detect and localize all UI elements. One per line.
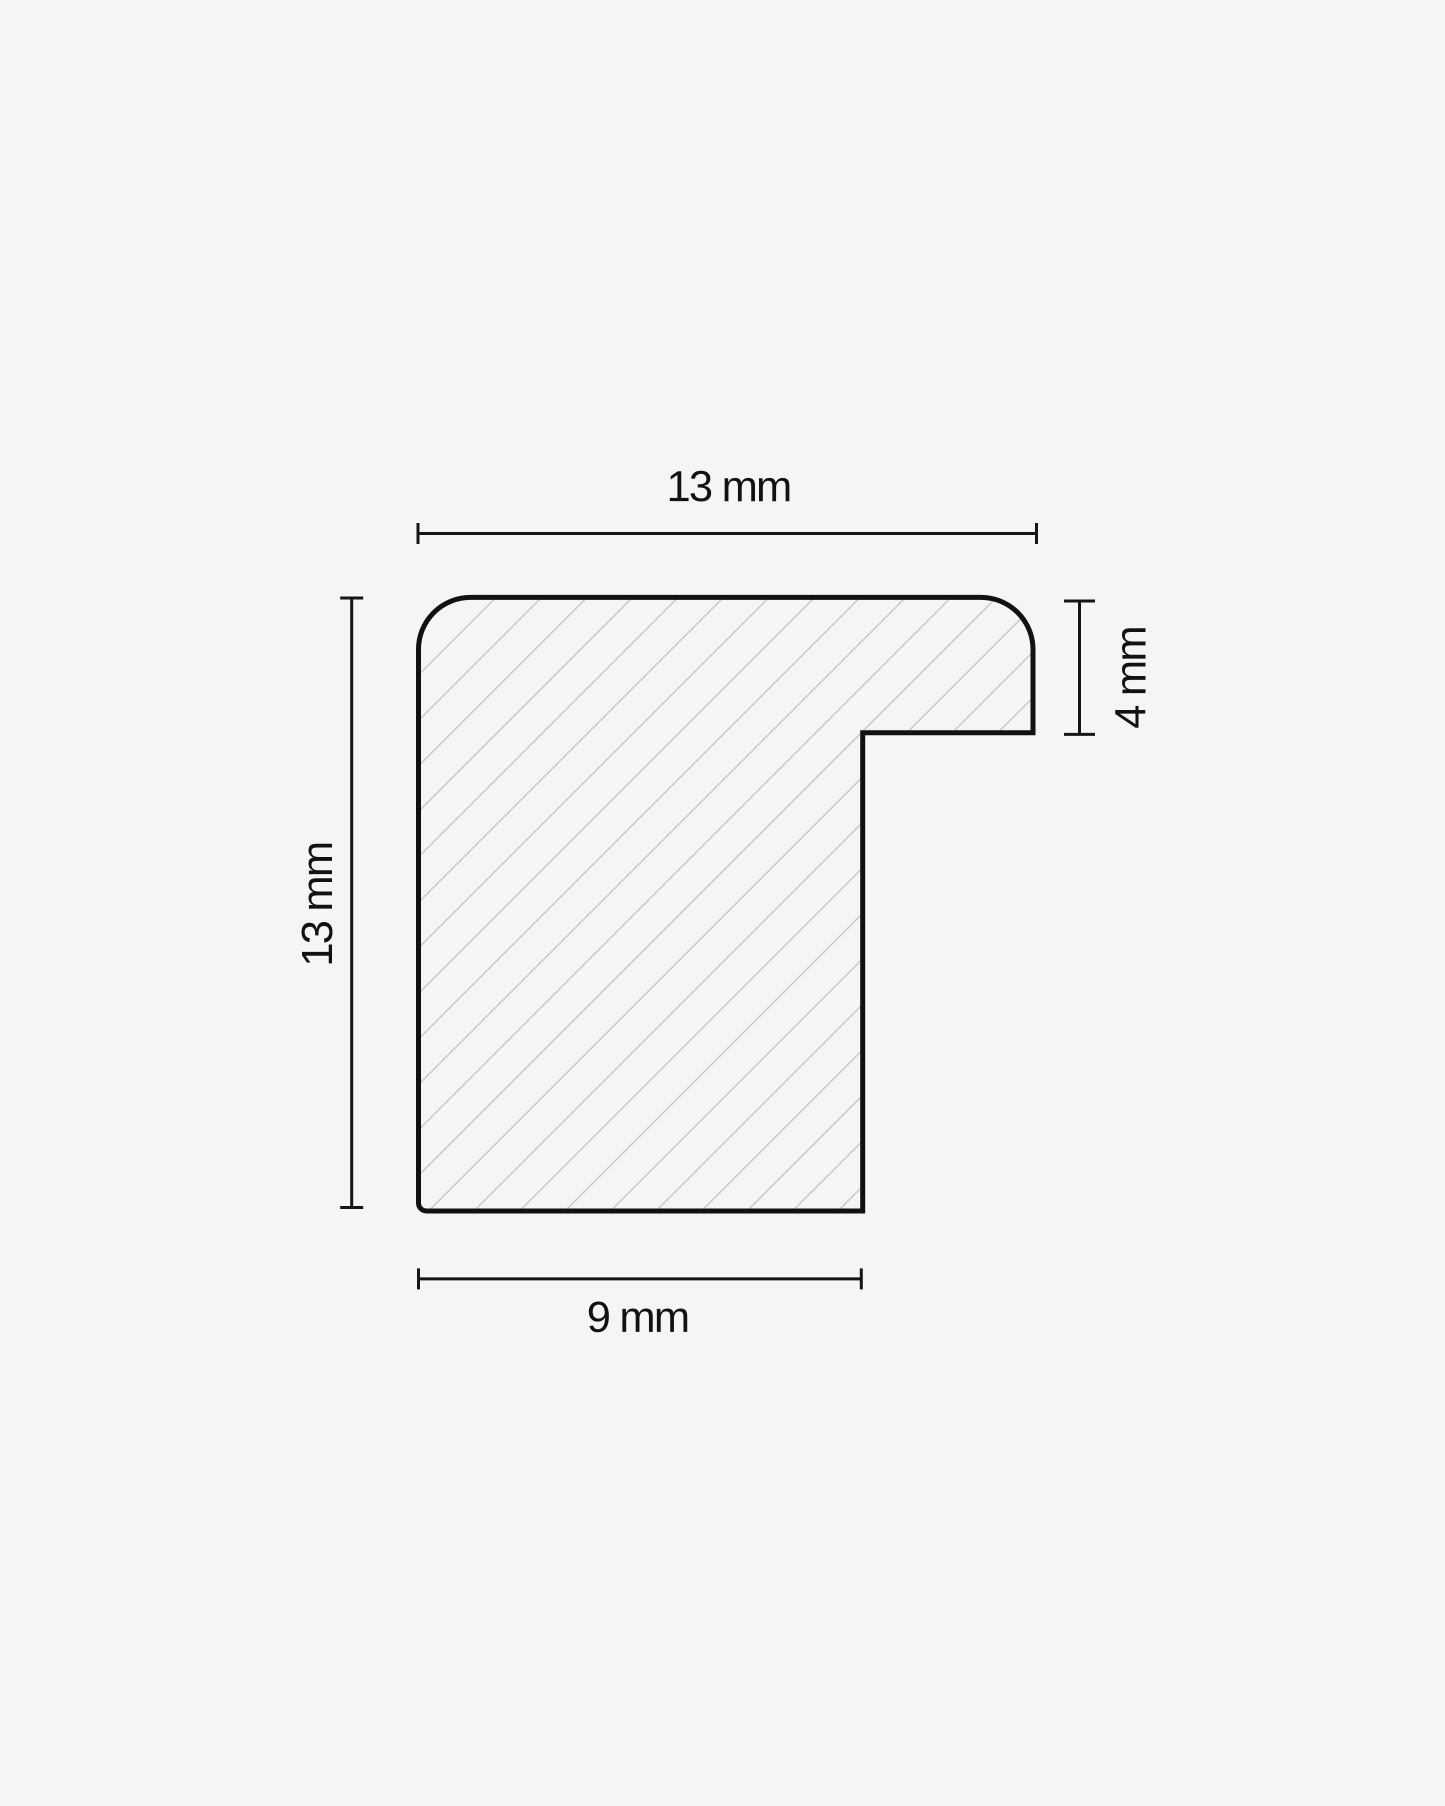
svg-text:13 mm: 13 mm	[294, 843, 342, 967]
svg-text:4 mm: 4 mm	[1108, 627, 1156, 729]
svg-text:13 mm: 13 mm	[667, 463, 791, 511]
svg-text:9 mm: 9 mm	[587, 1294, 689, 1342]
